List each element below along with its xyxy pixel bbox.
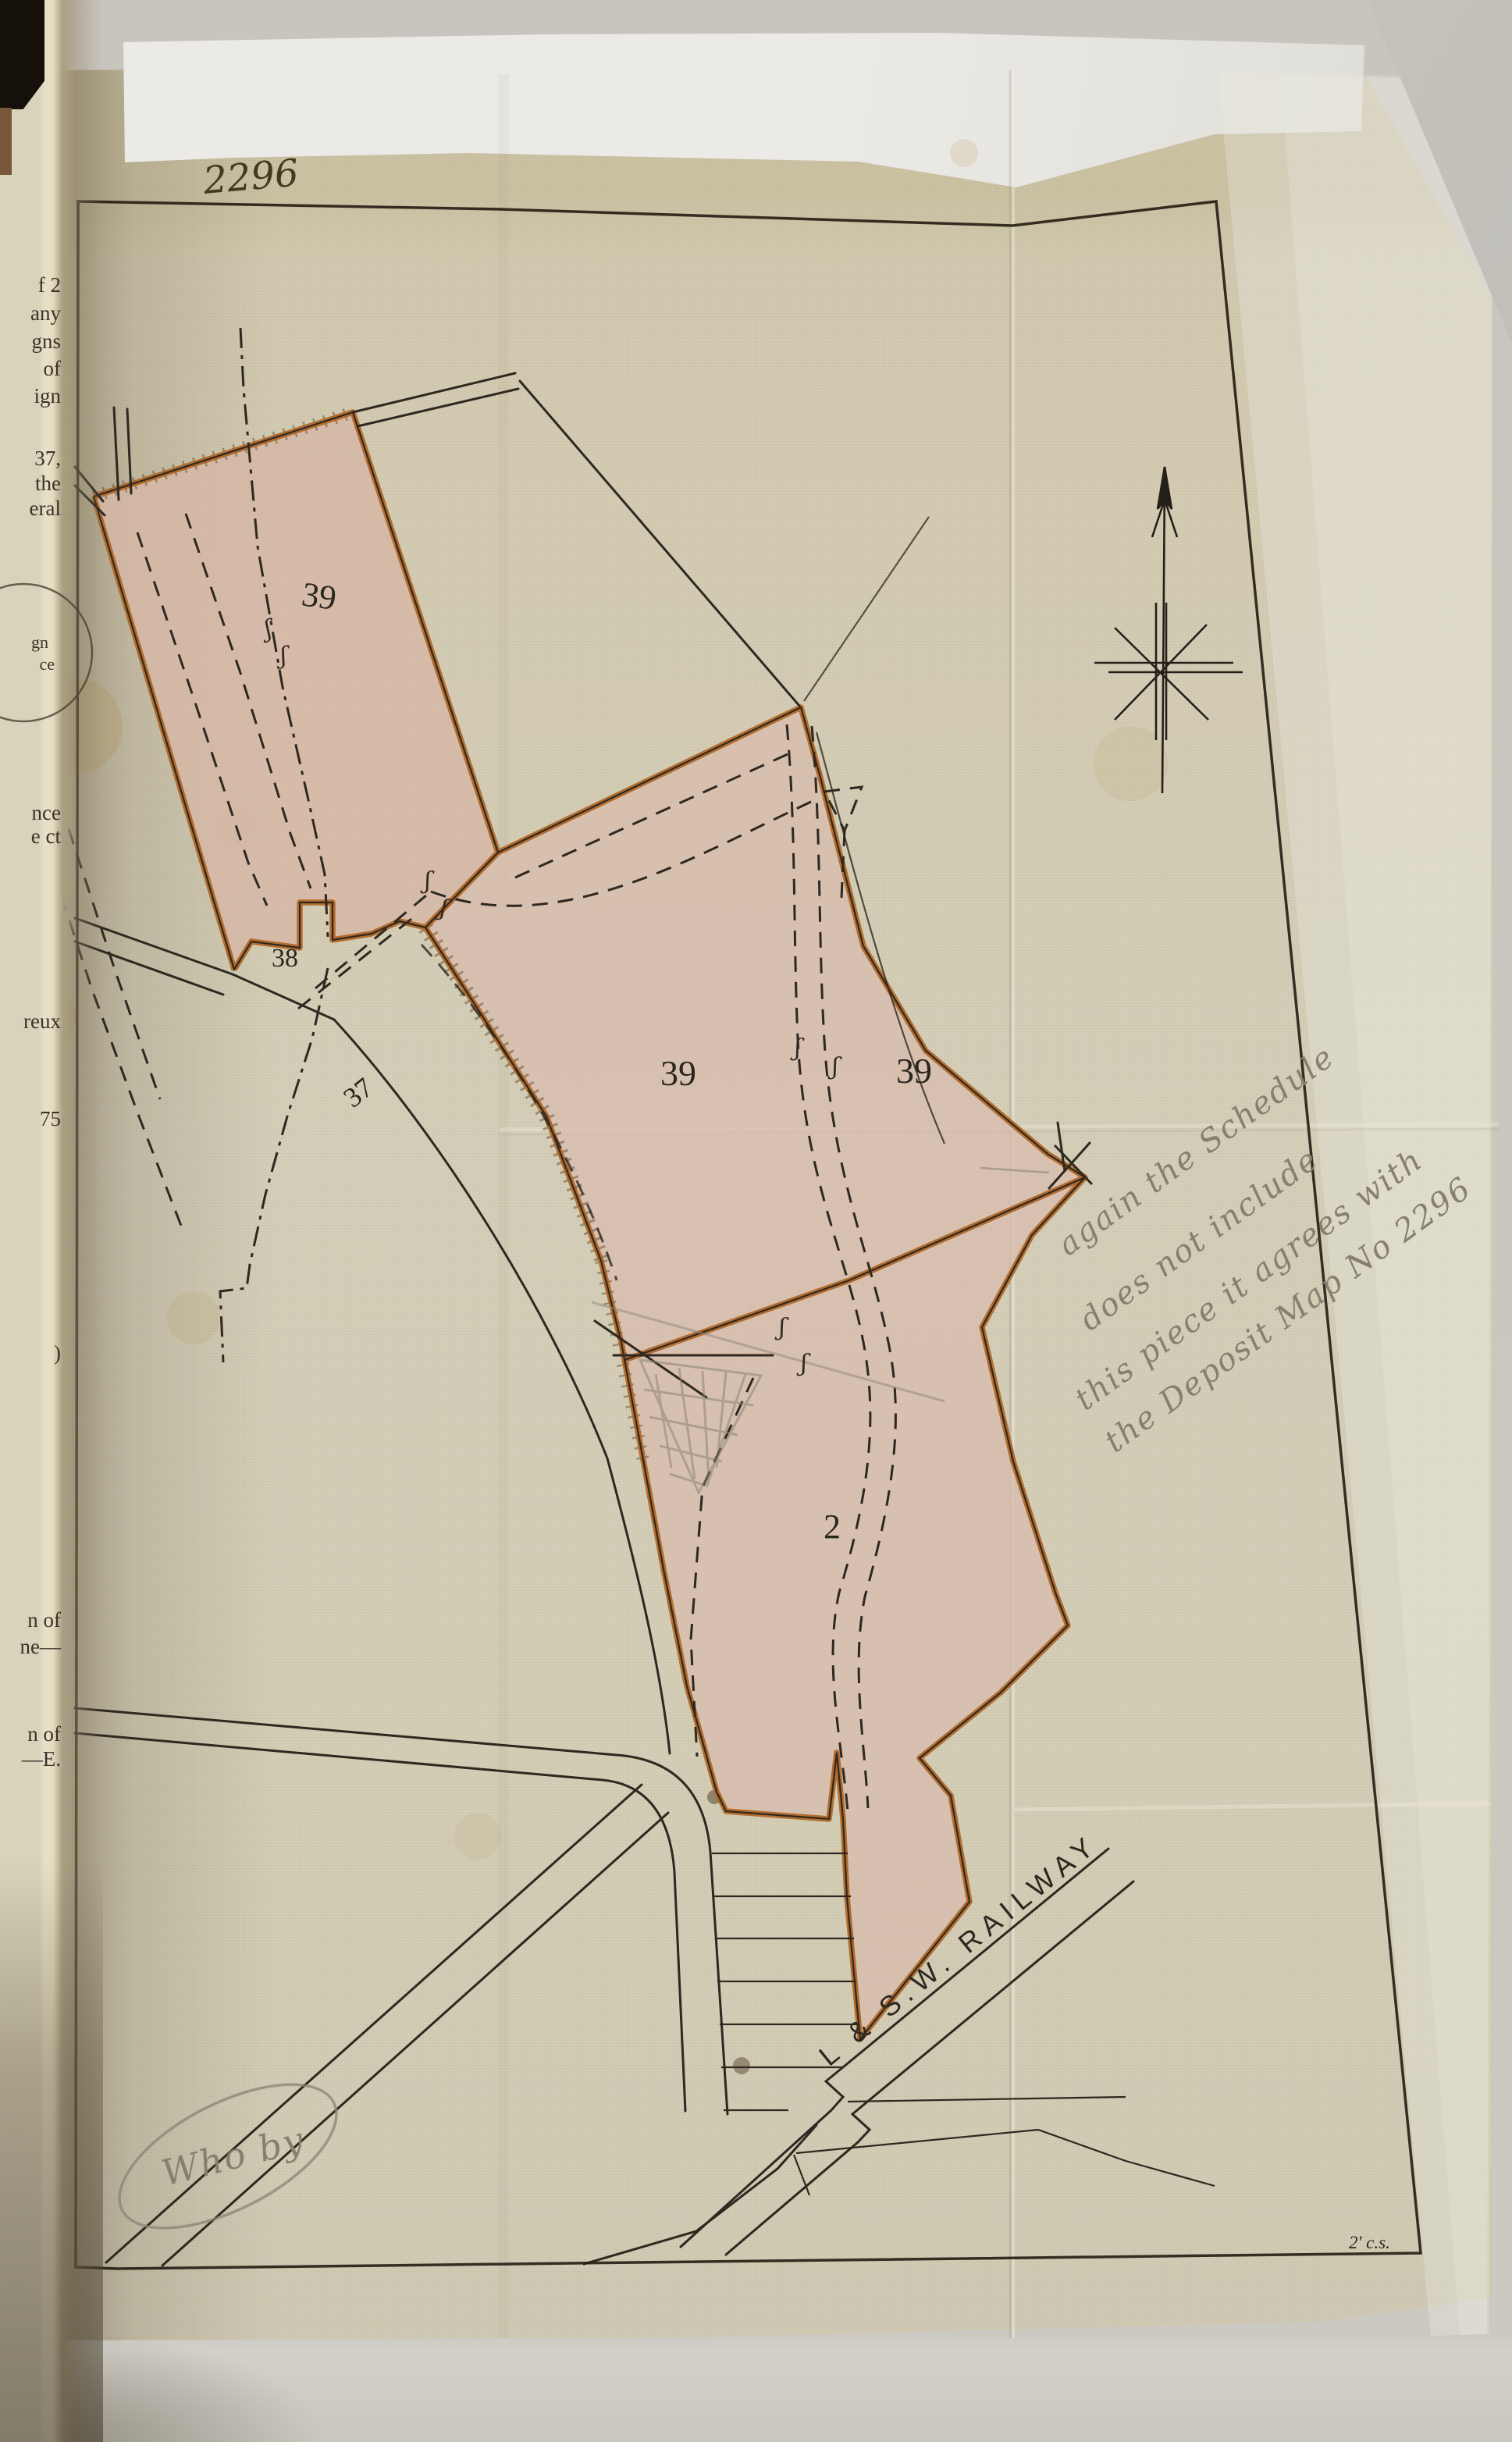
print-fragment: eral (30, 498, 61, 519)
print-fragment: of (44, 358, 62, 379)
print-fragment: n of (27, 1724, 61, 1745)
print-fragment: e ct (31, 826, 61, 847)
print-fragment: the (35, 473, 61, 494)
print-fragment: gns (31, 331, 61, 352)
corner-mark: 2' c.s. (1349, 2233, 1390, 2252)
plan-number: 2296 (201, 151, 301, 204)
circular-stamp (0, 578, 103, 734)
parcel-middle-and-2 (425, 707, 1085, 2039)
print-fragment: n of (27, 1610, 61, 1631)
parcel-label-2: 2 (824, 1508, 841, 1546)
print-fragment: reux (23, 1011, 61, 1032)
print-fragment: 37, (34, 448, 61, 469)
print-fragment: —E. (22, 1749, 61, 1770)
scanned-map-page: { "page": { "plan_number": "2296", "corn… (0, 0, 1512, 2442)
pencil-oval-note: Who by (62, 2055, 358, 2257)
print-fragment: ign (34, 386, 61, 407)
print-fragment: 75 (40, 1109, 61, 1130)
parcel-label-39b: 39 (660, 1053, 696, 1093)
print-fragment: nce (32, 803, 61, 824)
parcel-label-37: 37 (337, 1072, 379, 1114)
parcel-label-39c: 39 (896, 1051, 932, 1091)
print-fragment: ne— (20, 1636, 61, 1657)
print-fragment: ) (54, 1343, 61, 1364)
print-fragment: f 2 (38, 275, 61, 296)
parcel-label-38: 38 (272, 944, 298, 973)
book-spine-edge (0, 108, 12, 175)
print-fragment: any (30, 303, 61, 324)
parcel-label-39a: 39 (300, 575, 339, 618)
book-page-edge: f 2 any gns of ign 37, the eral gn ce nc… (0, 0, 103, 2442)
map-artwork: 39 38 37 39 39 2 ʃ ʃ ʃ ʃ ʃ ʃ ʃ ʃ L & S.W… (0, 0, 1512, 2442)
